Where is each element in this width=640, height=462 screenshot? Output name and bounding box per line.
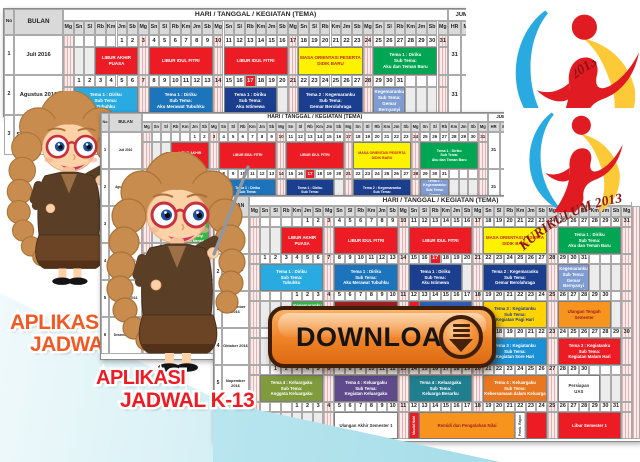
date-cell: 25 (382, 169, 392, 179)
date-cell: 13 (419, 402, 430, 412)
event-cell: Pemb. Rapor (515, 412, 526, 439)
date-cell: 25 (526, 365, 537, 375)
date-cell: 29 (420, 169, 430, 179)
day-header-cell: Mg (323, 206, 334, 217)
event-cell: Tema 2 : Kegemaranku Sub Tema: Gemar Ber… (483, 264, 547, 291)
date-cell: 2 (200, 132, 210, 142)
event-cell: MASA ORIENTASI PESERTA DIDIK BARU (353, 142, 411, 169)
day-header-cell: Sn (334, 206, 345, 217)
day-header-cell: Sl (161, 122, 171, 132)
bulan-header: BULAN (14, 9, 63, 35)
theme-base-cell (323, 227, 334, 254)
date-cell: 6 (345, 291, 356, 301)
date-cell: 30 (600, 402, 611, 412)
date-cell: 18 (353, 132, 363, 142)
event-cell: Tema 1 : Diriku Sub Tema: Aku dan Teman … (373, 47, 437, 75)
day-header-cell: Mg (363, 21, 374, 35)
theme-base-cell (621, 412, 632, 439)
date-cell (427, 75, 438, 87)
date-cell: 9 (377, 291, 388, 301)
date-cell: 6 (238, 132, 248, 142)
no-header: No (101, 113, 109, 132)
day-header-cell: Sb (267, 122, 277, 132)
day-header-cell: Jm (416, 21, 427, 35)
theme-base-cell (547, 264, 558, 291)
date-cell: 28 (547, 254, 558, 264)
day-header-cell: Rb (372, 122, 382, 132)
date-cell: 9 (345, 254, 356, 264)
day-header-cell: Sb (352, 21, 363, 35)
date-cell: 25 (568, 328, 579, 338)
theme-base-cell (398, 412, 409, 439)
day-header-cell: Sb (313, 206, 324, 217)
date-cell: 5 (228, 132, 238, 142)
jumlah-subheader: HR (488, 122, 500, 132)
theme-base-cell (472, 264, 483, 291)
date-cell: 16 (462, 217, 473, 227)
theme-base-cell (288, 47, 299, 75)
date-cell (270, 402, 281, 412)
date-cell: 23 (547, 328, 558, 338)
date-cell: 2 (302, 291, 313, 301)
theme-base-cell (398, 375, 409, 402)
date-cell: 8 (366, 402, 377, 412)
date-cell: 26 (392, 169, 402, 179)
date-cell: 15 (441, 291, 452, 301)
date-cell: 14 (213, 75, 224, 87)
theme-base-cell (138, 47, 149, 75)
date-cell: 19 (483, 291, 494, 301)
theme-base-cell (74, 47, 85, 75)
date-cell (416, 75, 427, 87)
date-cell: 28 (558, 365, 569, 375)
date-cell: 18 (256, 75, 267, 87)
theme-base-cell (398, 227, 409, 254)
date-cell (171, 132, 181, 142)
day-header-cell: Km (292, 206, 303, 217)
date-cell: 19 (266, 75, 277, 87)
date-cell: 21 (472, 254, 483, 264)
date-cell: 25 (373, 35, 384, 47)
date-cell: 29 (568, 365, 579, 375)
date-cell (589, 254, 600, 264)
theme-base-cell (270, 227, 281, 254)
day-header-cell: Km (331, 21, 342, 35)
event-cell: Tema 1 : Diriku Sub Tema: Tubuhku (260, 264, 324, 291)
date-cell: 22 (298, 75, 309, 87)
date-cell: 26 (526, 254, 537, 264)
date-cell (74, 35, 85, 47)
date-cell: 17 (462, 291, 473, 301)
date-cell: 5 (302, 254, 313, 264)
date-cell: 27 (547, 365, 558, 375)
day-header-cell: Sb (334, 122, 344, 132)
k13-logo-middle (504, 108, 640, 202)
date-cell: 7 (323, 254, 334, 264)
date-cell (621, 365, 632, 375)
day-header-cell: Rb (95, 21, 106, 35)
date-cell: 17 (430, 254, 441, 264)
theme-base-cell (478, 142, 488, 169)
day-header-cell: Sl (345, 206, 356, 217)
event-cell: Tema 1 : Diriku Sub Tema: Aku Istimewa (224, 87, 278, 115)
date-cell: 20 (504, 217, 515, 227)
date-cell: 27 (589, 328, 600, 338)
date-cell: 17 (245, 75, 256, 87)
day-header-cell: Sn (152, 122, 162, 132)
date-cell: 27 (352, 75, 363, 87)
day-header-cell: Sl (363, 122, 373, 132)
day-header-cell: Km (366, 206, 377, 217)
theme-base-cell (611, 375, 622, 402)
date-cell (449, 169, 459, 179)
day-header-cell: Sb (468, 122, 478, 132)
date-cell: 2 (270, 254, 281, 264)
theme-base-cell (462, 264, 473, 291)
date-cell: 17 (288, 35, 299, 47)
month-number: 1 (4, 35, 14, 75)
date-cell: 16 (334, 132, 344, 142)
event-cell: Tema 4 : Keluargaku Sub Tema: Kebersamaa… (483, 375, 547, 402)
event-cell: Tema 4 : Keluargaku Sub Tema: Kegiatan K… (334, 375, 398, 402)
title-back-line1: APLIKASI (10, 311, 104, 334)
theme-base-cell (611, 301, 622, 328)
event-cell: Tema 1 : Diriku Sub Tema: Aku dan Teman … (558, 227, 622, 254)
day-header-cell: Jm (190, 122, 200, 132)
date-cell: 21 (288, 75, 299, 87)
date-cell: 19 (451, 254, 462, 264)
date-cell: 18 (472, 402, 483, 412)
theme-base-cell (547, 375, 558, 402)
download-label: DOWNLOAD (296, 322, 462, 353)
date-cell: 30 (579, 365, 590, 375)
theme-base-cell (213, 87, 224, 115)
date-cell: 18 (472, 291, 483, 301)
day-header-cell: Mg (344, 122, 354, 132)
theme-base-cell (438, 87, 449, 115)
date-cell: 24 (504, 254, 515, 264)
date-cell: 27 (395, 35, 406, 47)
day-header-cell: Rb (281, 206, 292, 217)
theme-base-cell (277, 87, 288, 115)
day-header-cell: Mg (213, 21, 224, 35)
event-cell: Libur Semester 1 (558, 412, 622, 439)
date-cell: 20 (320, 35, 331, 47)
title-front-line1: APLIKASI (96, 367, 185, 389)
date-cell: 30 (621, 328, 632, 338)
date-cell: 28 (449, 132, 459, 142)
date-cell: 12 (234, 35, 245, 47)
date-cell: 13 (305, 132, 315, 142)
theme-base-cell (621, 227, 632, 254)
day-header-cell: Sb (200, 122, 210, 132)
theme-base-cell (416, 87, 427, 115)
date-cell: 29 (558, 254, 569, 264)
theme-base-cell (344, 142, 354, 169)
day-header-cell: Jm (324, 122, 334, 132)
date-cell (270, 217, 281, 227)
date-cell: 19 (363, 132, 373, 142)
date-cell: 14 (315, 132, 325, 142)
hari-tanggal-header: HARI / TANGGAL / KEGIATAN (TEMA) (63, 9, 448, 21)
date-cell: 23 (401, 132, 411, 142)
theme-base-cell (621, 375, 632, 402)
day-header-cell: Mg (288, 21, 299, 35)
date-cell: 14 (276, 169, 286, 179)
date-cell: 11 (409, 217, 420, 227)
date-cell: 21 (526, 328, 537, 338)
title-front: APLIKASIAPLIKASI JADWAL K-13JADWAL K-13 (96, 368, 254, 411)
date-cell: 10 (355, 254, 366, 264)
date-cell: 27 (440, 132, 450, 142)
date-cell: 8 (334, 254, 345, 264)
date-cell: 20 (515, 328, 526, 338)
date-cell: 23 (309, 75, 320, 87)
date-cell (459, 169, 469, 179)
date-cell: 4 (323, 402, 334, 412)
date-cell: 14 (441, 217, 452, 227)
date-cell: 26 (430, 132, 440, 142)
event-cell: LIBUR IDUL FITRI (409, 227, 473, 254)
date-cell: 16 (451, 291, 462, 301)
event-cell: Tema 2 : Kegemaranku Sub Tema: Gemar Ber… (298, 87, 362, 115)
date-cell: 13 (387, 254, 398, 264)
day-header-cell: Sn (420, 122, 430, 132)
event-cell: LIBUR IDUL FITRI (224, 47, 288, 75)
day-header-cell: Km (248, 122, 258, 132)
date-cell: 6 (313, 254, 324, 264)
date-cell: 22 (353, 169, 363, 179)
date-cell: 16 (296, 169, 306, 179)
date-cell: 22 (515, 291, 526, 301)
date-cell: 15 (451, 217, 462, 227)
day-header-cell: Sn (149, 21, 160, 35)
date-cell: 6 (170, 35, 181, 47)
date-cell: 13 (245, 35, 256, 47)
day-header-cell: Rb (171, 122, 181, 132)
date-cell (405, 75, 416, 87)
date-cell: 25 (420, 132, 430, 142)
date-cell: 27 (568, 291, 579, 301)
date-cell (281, 217, 292, 227)
date-cell: 19 (309, 35, 320, 47)
date-cell: 3 (313, 291, 324, 301)
day-header-cell: Mg (209, 122, 219, 132)
date-cell: 16 (277, 35, 288, 47)
date-cell (611, 291, 622, 301)
date-cell: 25 (547, 291, 558, 301)
date-cell: 14 (430, 291, 441, 301)
date-cell (621, 402, 632, 412)
date-cell: 20 (494, 402, 505, 412)
day-header-cell: Mg (438, 21, 449, 35)
date-cell: 3 (209, 132, 219, 142)
theme-base-cell (611, 264, 622, 291)
download-button[interactable]: DOWNLOAD (268, 306, 496, 368)
date-cell: 23 (363, 169, 373, 179)
date-cell (281, 402, 292, 412)
date-cell: 30 (468, 132, 478, 142)
date-cell (600, 365, 611, 375)
event-cell: Tema 2 : Kegemaranku Sub Tema: Gemar Ber… (558, 264, 590, 291)
date-cell: 1 (117, 35, 128, 47)
date-cell: 16 (451, 402, 462, 412)
date-cell: 28 (405, 35, 416, 47)
date-cell: 21 (382, 132, 392, 142)
date-cell: 4 (323, 291, 334, 301)
date-cell: 29 (611, 328, 622, 338)
date-cell: 23 (526, 291, 537, 301)
date-cell: 7 (355, 291, 366, 301)
date-cell: 31 (611, 402, 622, 412)
date-cell (95, 35, 106, 47)
edge-filler (632, 206, 640, 439)
date-cell: 10 (213, 35, 224, 47)
date-cell (621, 291, 632, 301)
date-cell: 1 (292, 291, 303, 301)
date-cell: 7 (248, 132, 258, 142)
date-cell (180, 132, 190, 142)
day-header-cell: Mg (398, 206, 409, 217)
theme-base-cell (405, 87, 416, 115)
date-cell: 16 (419, 254, 430, 264)
date-cell: 9 (377, 402, 388, 412)
date-cell: 12 (296, 132, 306, 142)
day-header-cell: Rb (170, 21, 181, 35)
date-cell (84, 35, 95, 47)
date-cell: 3 (313, 402, 324, 412)
date-cell: 29 (459, 132, 469, 142)
theme-base-cell (621, 338, 632, 365)
hari-tanggal-header: HARI / TANGGAL / KEGIATAN (TEMA) (142, 113, 488, 122)
date-cell: 24 (515, 365, 526, 375)
day-header-cell: Sn (298, 21, 309, 35)
date-cell: 18 (298, 35, 309, 47)
theme-base-cell (547, 301, 558, 328)
day-header-cell: Sl (228, 122, 238, 132)
date-cell: 3 (323, 217, 334, 227)
date-cell: 20 (494, 291, 505, 301)
date-cell: 28 (579, 291, 590, 301)
event-cell: Tema 1 : Diriku Sub Tema: Aku Merawat Tu… (149, 87, 213, 115)
day-header-cell: Sn (409, 206, 420, 217)
theme-base-cell (323, 264, 334, 291)
day-header-cell: Sl (419, 206, 430, 217)
date-cell: 30 (568, 254, 579, 264)
day-header-cell: Sb (202, 21, 213, 35)
date-cell: 6 (345, 402, 356, 412)
day-header-cell: Jm (377, 206, 388, 217)
date-cell: 21 (344, 169, 354, 179)
date-cell: 28 (363, 75, 374, 87)
day-header-cell: Rb (305, 122, 315, 132)
day-header-cell: Jm (451, 206, 462, 217)
date-cell (270, 291, 281, 301)
theme-base-cell (84, 47, 95, 75)
date-cell: 29 (373, 75, 384, 87)
date-cell: 26 (579, 328, 590, 338)
date-cell (438, 75, 449, 87)
theme-base-cell (427, 87, 438, 115)
event-cell: Ulangan Tengah Semester (558, 301, 611, 328)
day-header-cell: Km (449, 122, 459, 132)
date-cell: 17 (462, 402, 473, 412)
date-cell: 10 (387, 291, 398, 301)
event-cell: Tema 4 : Keluargaku Sub Tema: Keluarga B… (409, 375, 473, 402)
date-cell: 21 (504, 402, 515, 412)
date-cell: 11 (398, 291, 409, 301)
date-cell: 26 (558, 291, 569, 301)
title-front-line2: JADWAL K-13 (120, 389, 254, 412)
date-cell: 20 (277, 75, 288, 87)
date-cell: 18 (441, 254, 452, 264)
date-cell: 10 (398, 217, 409, 227)
date-cell: 8 (191, 35, 202, 47)
day-header-cell: Sl (494, 206, 505, 217)
date-cell: 18 (315, 169, 325, 179)
date-cell: 15 (266, 35, 277, 47)
day-header-cell: Km (106, 21, 117, 35)
day-header-cell: Jm (257, 122, 267, 132)
date-cell: 12 (191, 75, 202, 87)
day-header-cell: Sl (384, 21, 395, 35)
date-cell: 24 (558, 328, 569, 338)
jumlah-hr-value: 31 (448, 35, 461, 75)
day-header-cell: Sl (270, 206, 281, 217)
date-cell: 26 (536, 365, 547, 375)
date-cell: 27 (568, 402, 579, 412)
event-cell: Tema 2 : Kegemaranku Sub Tema: Gemar Ber… (373, 87, 405, 115)
date-cell: 15 (224, 75, 235, 87)
date-cell: 8 (366, 291, 377, 301)
day-header-cell: Sb (427, 21, 438, 35)
download-arrow-icon (439, 315, 483, 359)
date-cell: 17 (305, 169, 315, 179)
day-header-cell: Rb (504, 206, 515, 217)
date-cell: 4 (149, 35, 160, 47)
event-cell: MASA ORIENTASI PESERTA DIDIK BARU (298, 47, 362, 75)
date-cell: 31 (478, 132, 488, 142)
date-cell: 13 (267, 169, 277, 179)
date-cell: 4 (334, 217, 345, 227)
day-header-cell: Sl (430, 122, 440, 132)
date-cell: 12 (419, 217, 430, 227)
day-header-cell: Rb (320, 21, 331, 35)
date-cell: 26 (558, 402, 569, 412)
date-cell: 22 (536, 328, 547, 338)
date-cell: 26 (384, 35, 395, 47)
theme-base-cell (363, 87, 374, 115)
date-cell: 23 (352, 35, 363, 47)
theme-base-cell (621, 301, 632, 328)
theme-base-cell (213, 47, 224, 75)
event-cell: Remidi dan Pengolahan Nilai (419, 412, 515, 439)
jumlah-hr-value: 31 (488, 132, 500, 169)
date-cell: 14 (256, 35, 267, 47)
date-cell (611, 254, 622, 264)
day-header-cell: Sn (286, 122, 296, 132)
day-header-cell: Rb (355, 206, 366, 217)
date-cell: 13 (419, 291, 430, 301)
date-cell: 1 (302, 217, 313, 227)
date-cell: 11 (224, 35, 235, 47)
day-header-cell: Jm (302, 206, 313, 217)
date-cell: 21 (331, 35, 342, 47)
day-header-cell: Sn (373, 21, 384, 35)
day-header-cell: Sb (387, 206, 398, 217)
date-cell: 24 (536, 291, 547, 301)
date-cell: 10 (170, 75, 181, 87)
